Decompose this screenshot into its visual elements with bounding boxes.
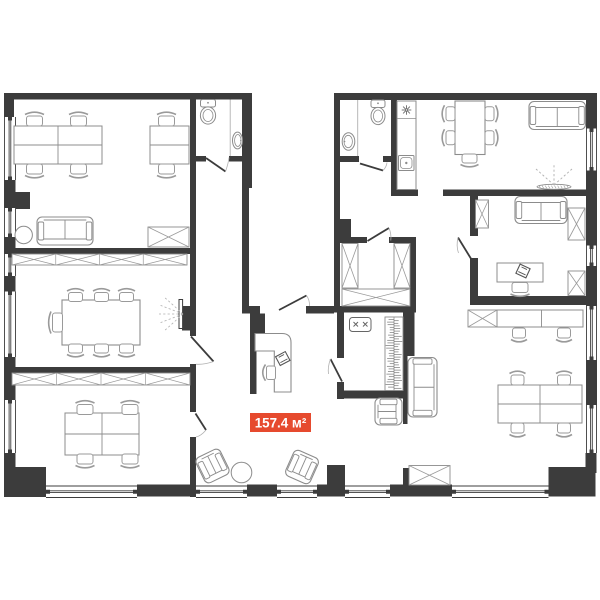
svg-text:157.4 м²: 157.4 м² (255, 416, 307, 431)
